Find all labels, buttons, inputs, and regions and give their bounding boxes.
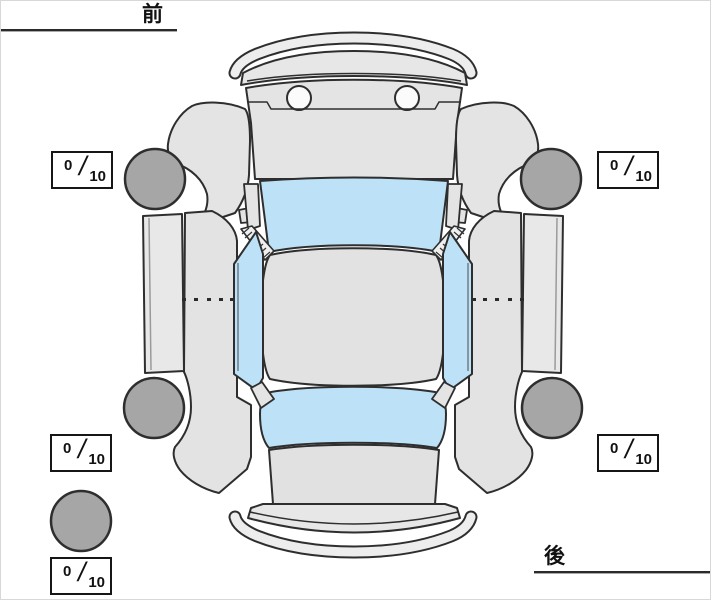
- rear-underline: [534, 571, 711, 574]
- rating-max: 10: [635, 168, 652, 185]
- rating-separator: /: [78, 557, 86, 588]
- rating-value: 0: [63, 563, 71, 580]
- rear-window-glass: [260, 387, 446, 448]
- rating-separator: /: [625, 434, 633, 465]
- rating-value: 0: [610, 440, 618, 457]
- left-headlamp-cap: [287, 86, 311, 110]
- rating-max: 10: [635, 451, 652, 468]
- car-body: [51, 38, 582, 552]
- rating-max: 10: [88, 451, 105, 468]
- rating-separator: /: [625, 151, 633, 182]
- right-headlamp-cap: [395, 86, 419, 110]
- rating-max: 10: [88, 574, 105, 591]
- rear-left-tire[interactable]: [124, 378, 184, 438]
- front-left-tire-rating[interactable]: 0 / 10: [51, 151, 113, 189]
- spare-tire-rating[interactable]: 0 / 10: [50, 557, 112, 595]
- roof-panel: [261, 248, 445, 386]
- spare-tire[interactable]: [51, 491, 111, 551]
- front-underline: [1, 29, 177, 32]
- trunk-lid: [269, 445, 439, 504]
- rating-max: 10: [89, 168, 106, 185]
- front-right-tire[interactable]: [521, 149, 581, 209]
- car-top-view-diagram: [1, 1, 711, 600]
- rating-separator: /: [78, 434, 86, 465]
- rear-right-tire-rating[interactable]: 0 / 10: [597, 434, 659, 472]
- windshield-glass: [260, 178, 448, 253]
- hood-panel: [246, 80, 462, 179]
- rating-value: 0: [64, 157, 72, 174]
- rating-separator: /: [79, 151, 87, 182]
- front-right-tire-rating[interactable]: 0 / 10: [597, 151, 659, 189]
- tire-condition-diagram-page: 前 後 0 / 10 0 / 10 0 / 10 0 / 10 0 / 10: [0, 0, 711, 600]
- front-label: 前: [142, 4, 164, 25]
- rear-left-tire-rating[interactable]: 0 / 10: [50, 434, 112, 472]
- rear-label: 後: [544, 546, 566, 567]
- rear-right-tire[interactable]: [522, 378, 582, 438]
- rating-value: 0: [63, 440, 71, 457]
- front-left-tire[interactable]: [125, 149, 185, 209]
- rating-value: 0: [610, 157, 618, 174]
